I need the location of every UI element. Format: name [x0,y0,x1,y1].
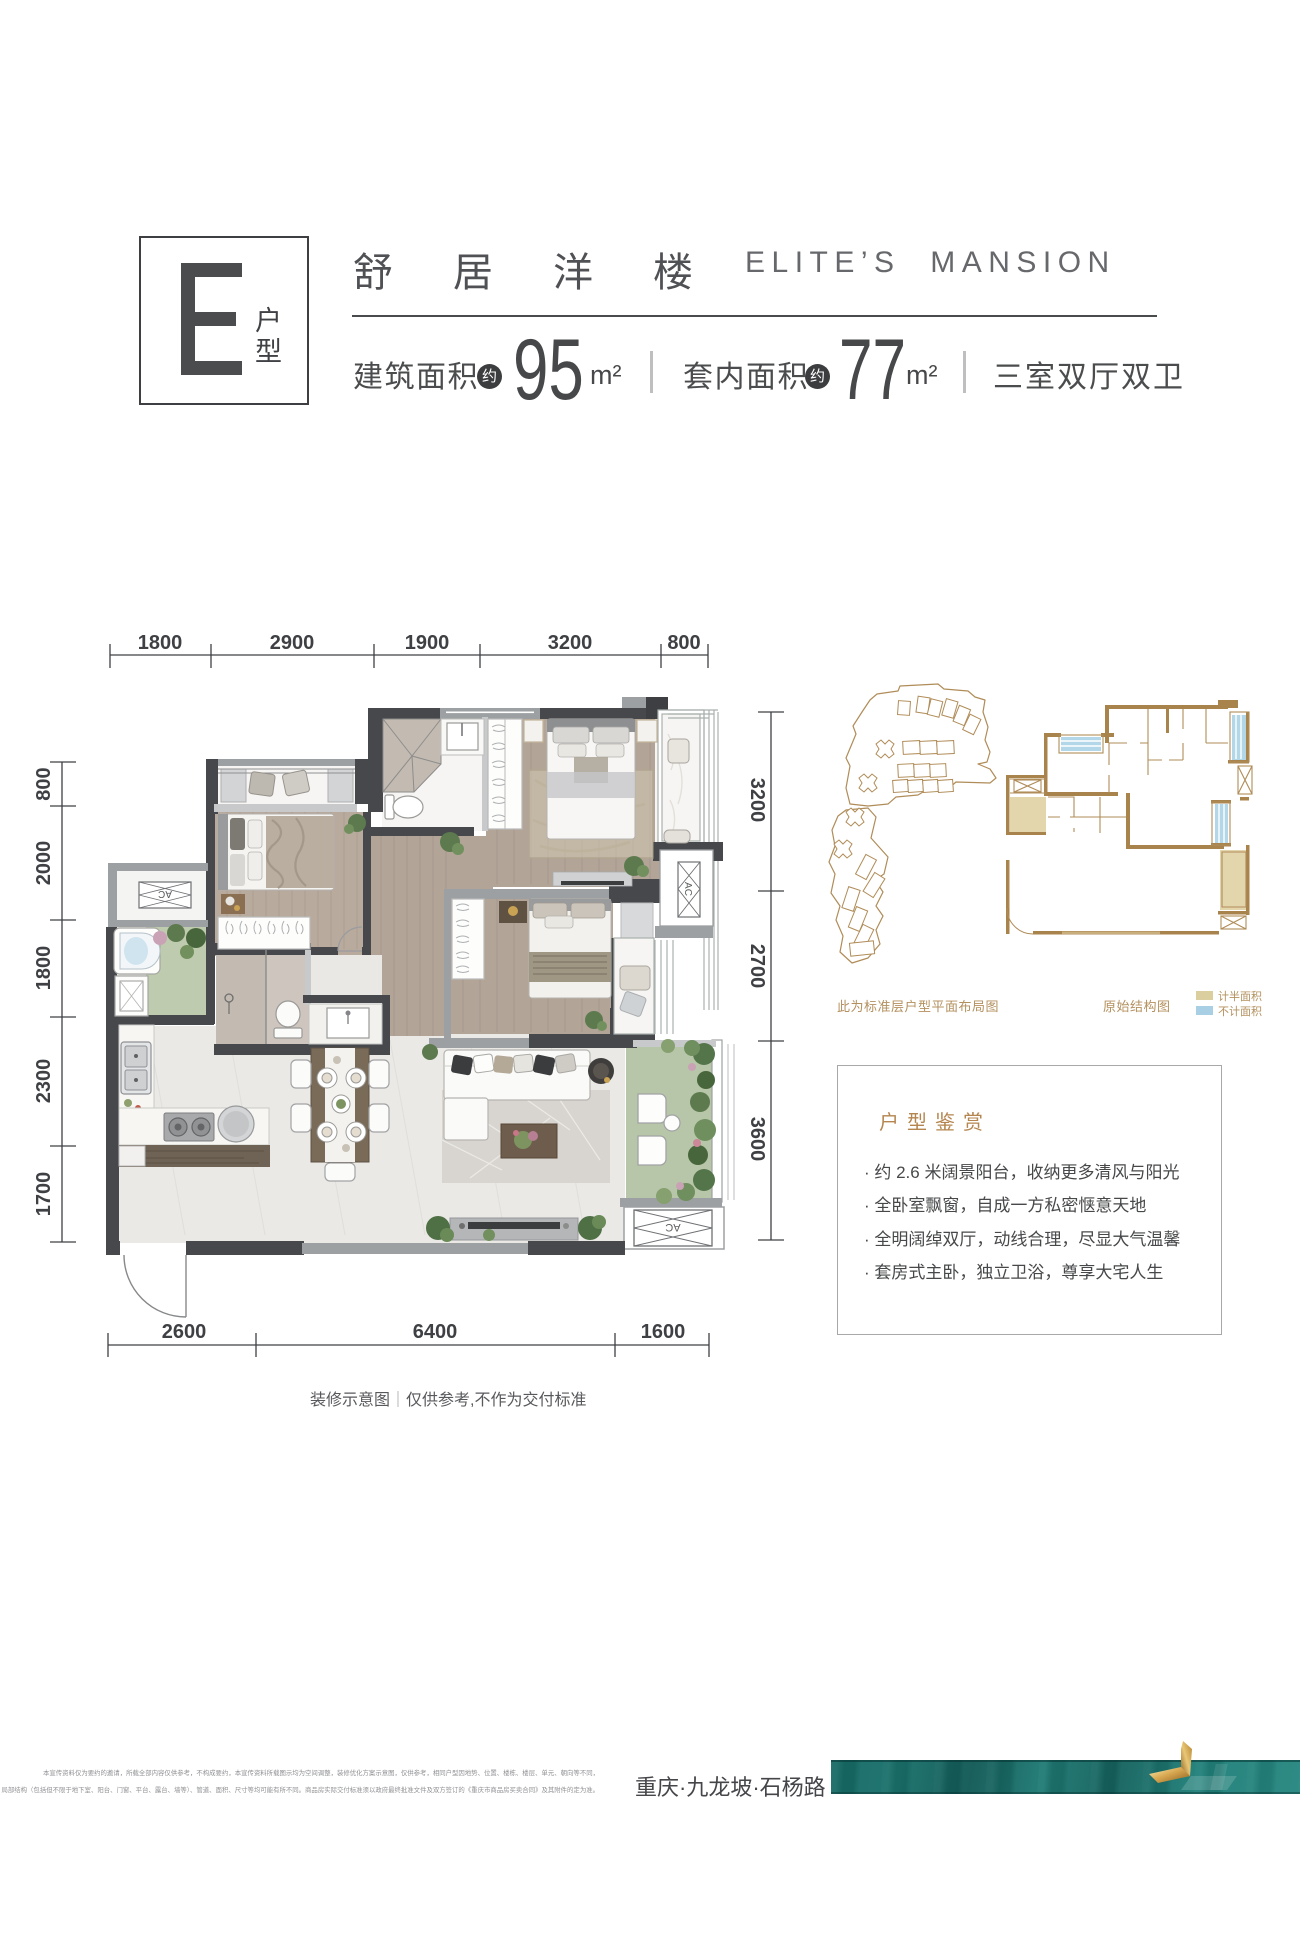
svg-text:1600: 1600 [641,1321,686,1343]
svg-text:AC: AC [682,882,693,896]
svg-text:3200: 3200 [746,778,768,823]
svg-text:6400: 6400 [413,1321,458,1343]
svg-text:2900: 2900 [270,632,315,654]
svg-text:1700: 1700 [33,1172,55,1217]
svg-text:1900: 1900 [405,632,450,654]
svg-text:1800: 1800 [138,632,183,654]
svg-text:2600: 2600 [162,1321,207,1343]
svg-text:3200: 3200 [548,632,593,654]
svg-text:AC: AC [158,888,172,899]
svg-text:2300: 2300 [33,1059,55,1104]
svg-text:3600: 3600 [746,1117,768,1162]
svg-text:1800: 1800 [33,946,55,991]
svg-text:800: 800 [33,767,55,800]
svg-text:800: 800 [667,632,700,654]
svg-text:2700: 2700 [746,944,768,989]
svg-text:AC: AC [665,1221,680,1233]
svg-text:2000: 2000 [33,841,55,886]
